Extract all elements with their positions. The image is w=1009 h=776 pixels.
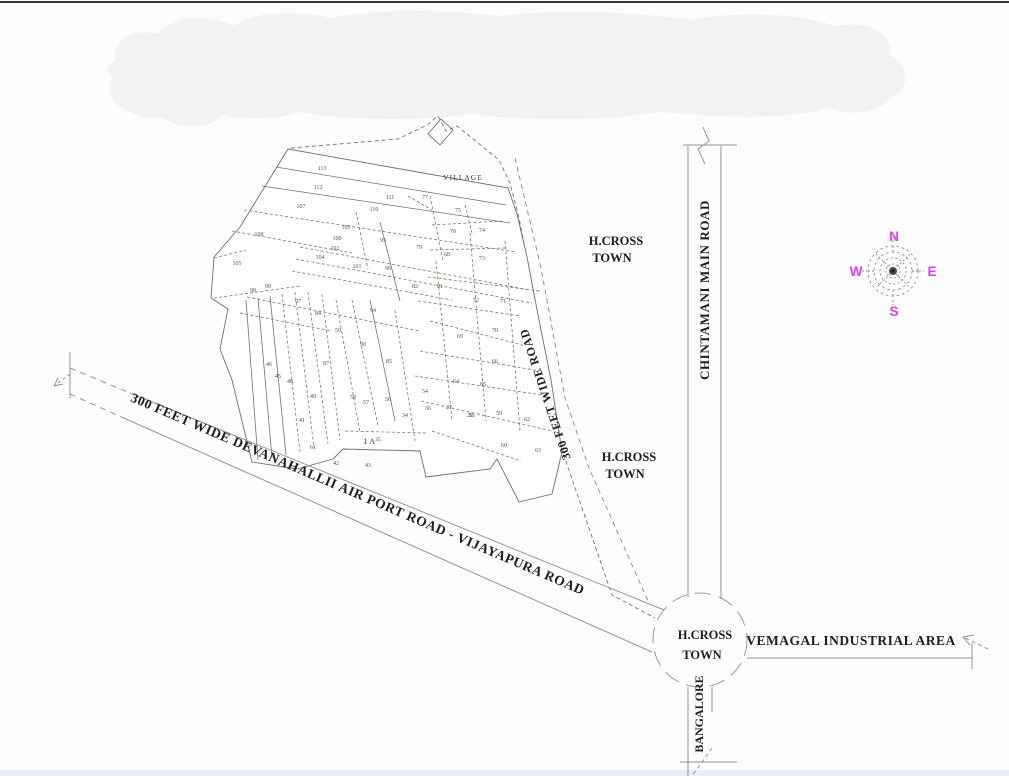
compass-w: W (850, 264, 863, 279)
plot-number: 104 (316, 255, 325, 261)
plot-number: 43 (365, 463, 371, 469)
plot-number: 81 (437, 284, 443, 290)
plot-number: 61 (310, 445, 316, 451)
plot-number: 63 (535, 448, 541, 454)
plot-number: 79 (416, 245, 422, 251)
plot-number: 100 (333, 236, 342, 242)
hcross-town-roundabout: H.CROSS TOWN (678, 628, 733, 662)
plot-number: 110 (370, 207, 379, 213)
arrow-shaft (963, 637, 988, 649)
survey-map-canvas: 1131121071111101031001021041011081059998… (0, 0, 1009, 776)
plot-number: 36 (425, 406, 431, 412)
plot-number: 65 (480, 382, 486, 388)
vemagal-label: VEMAGAL INDUSTRIAL AREA (746, 633, 956, 648)
plot-number: 112 (314, 185, 323, 191)
plot-number: 72 (473, 298, 479, 304)
plot-number: 103 (342, 225, 351, 231)
plot-number: 87 (323, 361, 329, 367)
plot-number: 105 (233, 261, 242, 267)
plot-number: 64 (453, 379, 459, 385)
plot-number: 68 (444, 252, 450, 258)
plot-number: 41 (299, 418, 305, 424)
compass-e: E (927, 264, 936, 279)
plot-number: 34 (402, 413, 408, 419)
plot-number: 84 (315, 311, 321, 317)
plot-number: 82 (412, 284, 418, 290)
plot-number: 73 (479, 256, 485, 262)
plot-number: 45 (275, 374, 281, 380)
plot-number: 99 (265, 284, 271, 290)
plot-number: 57 (363, 400, 369, 406)
plot-number: 78 (450, 229, 456, 235)
plot-number: 48 (287, 379, 293, 385)
hcross-line1: H.CROSS (678, 628, 733, 642)
plot-number: 108 (255, 232, 264, 238)
plot-number: 66 (492, 359, 498, 365)
plot-number: 77 (422, 195, 428, 201)
plot-number: 74 (479, 228, 485, 234)
hcross-line1: H.CROSS (589, 234, 644, 248)
top-border-line (0, 1, 1009, 3)
plot-number: 59 (496, 411, 502, 417)
compass-s: S (889, 304, 898, 319)
bangalore-road (680, 687, 737, 776)
plot-number: 54 (422, 389, 428, 395)
plot-number: 71 (500, 299, 506, 305)
plot-number: 50 (335, 328, 341, 334)
plot-number: 27 (446, 405, 452, 411)
plot-number: 49 (310, 394, 316, 400)
hcross-town-lower: H.CROSS TOWN (602, 450, 657, 481)
plot-number: 113 (318, 166, 327, 172)
compass-rose: N S W E (850, 229, 937, 319)
plot-number: 98 (250, 288, 256, 294)
bangalore-label: BANGALORE (692, 675, 706, 752)
plot-number: 102 (331, 246, 340, 252)
plot-number: 95 (380, 238, 386, 244)
bottom-strip (0, 770, 1009, 776)
plot-number: 70 (492, 328, 498, 334)
plot-number: 107 (297, 204, 306, 210)
plot-number: 97 (295, 299, 301, 305)
chintamani-road-label: CHINTAMANI MAIN ROAD (697, 200, 712, 380)
plot-number: 62 (524, 417, 530, 423)
survey-map-page: 1131121071111101031001021041011081059998… (0, 0, 1009, 776)
plot-number: 90 (360, 342, 366, 348)
compass-n: N (889, 229, 899, 244)
redacted-blob (108, 11, 906, 126)
plot-number: 46 (266, 362, 272, 368)
plot-number: 60 (501, 443, 507, 449)
plot-number: 75 (455, 208, 461, 214)
plot-number: 26 (467, 413, 473, 419)
plot-number: 69 (457, 334, 463, 340)
village-label: VILLAGE (443, 173, 483, 182)
hcross-line2: TOWN (682, 648, 721, 662)
plot-number: 111 (386, 195, 395, 201)
plot-number: 58 (350, 395, 356, 401)
hcross-town-upper: H.CROSS TOWN (589, 234, 644, 265)
hcross-line2: TOWN (605, 467, 644, 481)
plot-number: 85 (386, 359, 392, 365)
plot-number: 96 (385, 266, 391, 272)
hcross-line1: H.CROSS (602, 450, 657, 464)
plot-number: 94 (370, 308, 376, 314)
plot-number: 42 (333, 461, 339, 467)
hcross-line2: TOWN (592, 251, 631, 265)
plot-number: 56 (385, 397, 391, 403)
plot-number: 101 (353, 264, 362, 270)
